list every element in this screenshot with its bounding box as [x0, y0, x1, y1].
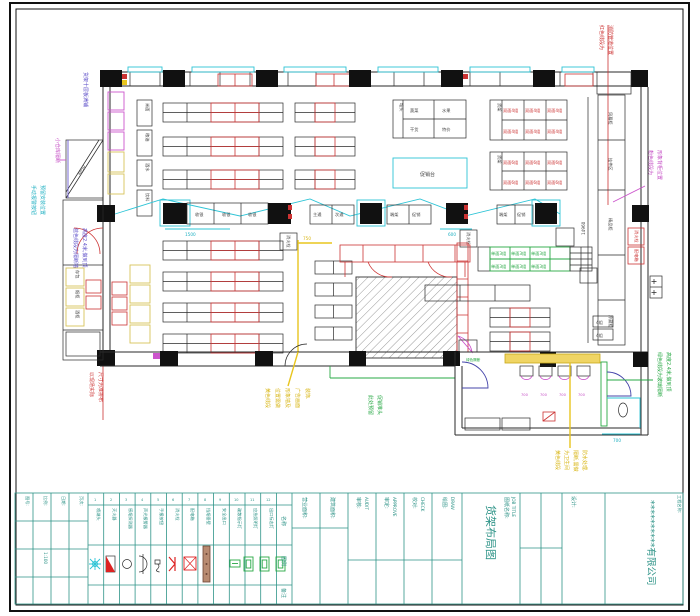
svg-text:声光报警器: 声光报警器 — [142, 508, 149, 530]
svg-text:4: 4 — [141, 498, 144, 502]
table-t3: 货架 双面6组 双面6组 双面6组 双面6组 双面6组 双面6组 — [490, 152, 567, 190]
svg-text:单面3组: 单面3组 — [511, 250, 526, 257]
svg-text:工程名称:: 工程名称: — [676, 495, 683, 513]
annotation-magenta: 粉色线段为 — [647, 150, 654, 175]
green-table: 单面3组 单面3组 单面3组 单面3组 单面3组 单面3组 — [490, 247, 570, 271]
svg-text:CHECK: CHECK — [420, 497, 425, 512]
corridor-box-label: 4组 — [596, 319, 603, 325]
svg-text:配电箱: 配电箱 — [189, 508, 196, 521]
marker — [122, 74, 127, 79]
checkout-band: 收银 收银 收银 主通 次通 端架 促销 端架 促销 1500 600 — [115, 199, 574, 250]
svg-text:收银: 收银 — [222, 211, 231, 218]
svg-text:9: 9 — [219, 498, 221, 502]
svg-text:防水处理.: 防水处理. — [581, 450, 588, 472]
svg-text:粮油: 粮油 — [144, 133, 151, 141]
svg-text:10: 10 — [234, 498, 238, 502]
dim-fixture: 700 — [559, 393, 567, 397]
svg-text:尺寸为准排布: 尺寸为准排布 — [97, 372, 104, 402]
svg-text:审定:: 审定: — [383, 497, 390, 509]
svg-text:收银: 收银 — [195, 211, 204, 218]
svg-text:水果: 水果 — [442, 107, 451, 114]
svg-text:双面6组: 双面6组 — [503, 179, 518, 186]
svg-text:装饰.: 装饰. — [304, 388, 311, 400]
dim-fixture: 700 — [521, 393, 529, 397]
mini-table: 图号: 比例: 日期: 页次: 1:100 — [15, 493, 88, 604]
svg-text:单面3组: 单面3组 — [491, 250, 506, 257]
company-cell: 工程名称: **********有限公司 — [645, 495, 683, 586]
svg-text:营业面积:: 营业面积: — [301, 497, 308, 519]
svg-text:货架: 货架 — [496, 103, 503, 111]
svg-text:消火栓: 消火栓 — [174, 508, 181, 521]
sprinkler-symbol — [89, 558, 101, 570]
left-label-boxes: 米面 粮油 酒水 饮料 — [137, 100, 152, 216]
corner-door — [458, 336, 472, 352]
svg-text:双面6组: 双面6组 — [525, 159, 540, 166]
svg-text:黄色线段: 黄色线段 — [554, 450, 561, 470]
ramp: 4850 — [66, 140, 103, 198]
svg-text:5: 5 — [157, 498, 159, 502]
marker — [153, 353, 160, 359]
svg-text:设计:: 设计: — [570, 496, 577, 508]
svg-text:手报按钮: 手报按钮 — [158, 508, 165, 525]
svg-text:饮料: 饮料 — [144, 193, 151, 202]
svg-text:双面6组: 双面6组 — [503, 159, 518, 166]
svg-text:蔬菜: 蔬菜 — [410, 107, 419, 114]
svg-text:双面4组: 双面4组 — [547, 128, 562, 135]
svg-text:双面4组: 双面4组 — [503, 128, 518, 135]
green-partition — [601, 362, 607, 426]
svg-text:感烟探测器: 感烟探测器 — [127, 508, 134, 530]
smoke-detector-symbol — [123, 560, 132, 569]
svg-text:收银: 收银 — [248, 211, 257, 218]
svg-text:为卫生间: 为卫生间 — [563, 450, 570, 470]
svg-text:页次:: 页次: — [78, 496, 85, 506]
svg-text:日期:: 日期: — [60, 496, 66, 506]
annotation-bottom-left-red: 以现场实际 尺寸为准排布 — [88, 366, 104, 420]
door-arc — [285, 344, 307, 366]
svg-text:双面6组: 双面6组 — [547, 159, 562, 166]
red-box-label: 配电箱 — [633, 249, 640, 262]
svg-text:高度2.4米,做到顶: 高度2.4米,做到顶 — [665, 352, 672, 392]
svg-text:米面: 米面 — [144, 103, 151, 111]
svg-text:单面3组: 单面3组 — [531, 250, 546, 257]
title-block: 图号: 比例: 日期: 页次: 1:100 1 2 3 4 5 6 7 8 9 … — [15, 493, 683, 604]
svg-text:绘图:: 绘图: — [441, 497, 448, 509]
svg-text:图号:: 图号: — [24, 496, 30, 506]
svg-text:堆头: 堆头 — [398, 103, 405, 111]
svg-text:次通: 次通 — [335, 211, 344, 218]
svg-text:审核:: 审核: — [355, 497, 362, 509]
svg-text:单面3组: 单面3组 — [511, 263, 526, 270]
lower-shelving: 750 — [112, 236, 352, 353]
drawing-name: 货架布局图 — [484, 505, 498, 560]
svg-text:DRAW: DRAW — [450, 497, 455, 510]
annotation-cyan: 预留安装位置 — [39, 185, 46, 215]
hatched-duct — [597, 72, 631, 94]
svg-text:绿色线段为玻璃隔断: 绿色线段为玻璃隔断 — [656, 352, 663, 397]
door-arc — [607, 372, 631, 396]
dim-toilet: 700 — [613, 438, 621, 443]
entry-annex: 存包 烟柜 酒柜 — [63, 200, 103, 360]
corridor-label: 挂件区 — [607, 158, 614, 171]
svg-text:存包: 存包 — [75, 270, 81, 279]
svg-text:隔断,需做: 隔断,需做 — [572, 450, 579, 472]
svg-text:1:100: 1:100 — [43, 552, 48, 564]
svg-text:促销台: 促销台 — [420, 171, 435, 178]
marker — [463, 74, 468, 79]
svg-text:双面4组: 双面4组 — [503, 107, 518, 114]
dim-ramp: 4850 — [76, 164, 86, 176]
svg-text:双面4组: 双面4组 — [525, 107, 540, 114]
svg-text:APPROVE: APPROVE — [392, 497, 397, 517]
annotation-left-magenta: 小仓库隔断 — [54, 138, 66, 163]
svg-text:双面4组: 双面4组 — [525, 128, 540, 135]
svg-text:7: 7 — [188, 498, 190, 502]
columns-top — [100, 70, 648, 87]
svg-text:2: 2 — [110, 498, 112, 502]
svg-text:双面6组: 双面6组 — [525, 179, 540, 186]
hydrant-symbol — [169, 557, 175, 571]
svg-text:酒柜: 酒柜 — [74, 310, 81, 318]
svg-text:促销: 促销 — [517, 211, 525, 218]
cad-sheet: 风幕柜 挂件区 精品柜 冷藏柜 消火栓 配电箱 4组 4组 14960 粉色线段… — [0, 0, 700, 616]
field-columns: 营业面积: 建筑面积: 审核: AUDIT 审定: APPROVE 校对: CH… — [292, 493, 462, 604]
svg-text:烟柜: 烟柜 — [74, 290, 81, 298]
exit-marker — [543, 412, 555, 421]
distribution-box-symbol — [184, 557, 196, 570]
dim-right-wall: 14960 — [581, 221, 586, 235]
dim-fixture: 700 — [540, 393, 548, 397]
annotation-red: 消防管道位置 — [607, 25, 614, 55]
svg-text:小仓库隔断: 小仓库隔断 — [54, 138, 61, 163]
safety-exit-symbol — [230, 560, 240, 567]
svg-text:主通: 主通 — [313, 211, 322, 218]
table-t1: 堆头 蔬菜 水果 干货 特价 — [393, 100, 466, 138]
svg-text:挡烟垂壁: 挡烟垂壁 — [205, 508, 212, 525]
dim-fixture: 700 — [578, 393, 586, 397]
svg-text:干货: 干货 — [410, 126, 418, 133]
floor-plan: 风幕柜 挂件区 精品柜 冷藏柜 消火栓 配电箱 4组 4组 14960 粉色线段… — [30, 25, 672, 472]
svg-text:图纸名称:: 图纸名称: — [503, 497, 510, 519]
dim: 1500 — [185, 232, 196, 237]
svg-text:校对:: 校对: — [411, 497, 418, 509]
svg-text:酒水: 酒水 — [144, 163, 151, 172]
svg-text:双面4组: 双面4组 — [547, 107, 562, 114]
table-t2: 货架 双面4组 双面4组 双面4组 双面4组 双面4组 双面4组 — [490, 100, 567, 140]
svg-text:备注: 备注 — [280, 588, 287, 598]
annotation-blue: 货架十层板满铺 — [82, 72, 89, 107]
svg-text:以现场实际: 以现场实际 — [88, 372, 95, 397]
svg-text:11: 11 — [250, 498, 254, 502]
svg-text:出口标志灯: 出口标志灯 — [268, 508, 275, 530]
annotation-cyan: 手动报警按钮 — [30, 185, 37, 215]
svg-text:建筑面积:: 建筑面积: — [329, 497, 336, 519]
legend-symbols — [89, 546, 285, 582]
corridor-box-label: 4组 — [596, 332, 603, 338]
svg-text:单面3组: 单面3组 — [531, 263, 546, 270]
svg-text:消火栓: 消火栓 — [285, 235, 292, 248]
svg-text:喷淋头: 喷淋头 — [95, 508, 102, 521]
svg-text:双面6组: 双面6组 — [547, 179, 562, 186]
dim-yellow: 750 — [303, 236, 311, 241]
svg-text:黄色线段: 黄色线段 — [264, 388, 271, 408]
smoke-barrier-symbol — [203, 546, 210, 582]
svg-text:此处预留: 此处预留 — [367, 395, 374, 415]
svg-text:12: 12 — [266, 498, 270, 502]
annotation-red: 红色线段为 — [598, 25, 605, 50]
svg-text:6: 6 — [172, 498, 174, 502]
corridor-label: 风幕柜 — [607, 112, 614, 125]
annotation-purple: 高度2.4米,做到顶 — [81, 228, 88, 268]
svg-text:广告画面: 广告画面 — [294, 388, 301, 408]
svg-text:单面3组: 单面3组 — [491, 263, 506, 270]
toilet-fixture — [619, 403, 628, 417]
svg-text:AUDIT: AUDIT — [364, 497, 369, 510]
annotation-mid-green: 此处预留 促销堆头 — [367, 395, 383, 415]
company-name: **********有限公司 — [645, 500, 657, 586]
annotation-green-small: 绿色隔断 — [466, 357, 481, 362]
svg-text:应急照明灯: 应急照明灯 — [252, 508, 259, 530]
dim: 600 — [448, 232, 456, 237]
red-box-label: 消火栓 — [633, 230, 640, 243]
svg-text:3: 3 — [125, 498, 127, 502]
stair-core — [340, 243, 472, 358]
marker — [122, 80, 127, 85]
top-wall — [100, 67, 648, 94]
svg-text:位置需做: 位置需做 — [274, 388, 281, 408]
svg-text:端架: 端架 — [390, 211, 398, 218]
svg-text:图例: 图例 — [280, 556, 287, 566]
annotation-magenta: 形象背柜位置 — [656, 150, 663, 180]
svg-text:疏散指示灯: 疏散指示灯 — [236, 508, 243, 530]
svg-text:形象墙及: 形象墙及 — [284, 388, 291, 408]
svg-text:灭火器: 灭火器 — [111, 508, 117, 521]
svg-text:促销堆头: 促销堆头 — [376, 395, 383, 415]
legend-table: 1 2 3 4 5 6 7 8 9 10 11 12 喷淋头 灭火器 感烟探测器… — [88, 493, 292, 604]
upper-shelving — [163, 103, 355, 189]
call-button-symbol — [155, 560, 160, 572]
extinguisher-symbol — [106, 556, 115, 572]
svg-text:端架: 端架 — [499, 211, 507, 218]
svg-text:8: 8 — [204, 498, 206, 502]
svg-text:特价: 特价 — [442, 126, 451, 132]
svg-text:比例:: 比例: — [42, 496, 49, 506]
svg-text:JOB TITLE: JOB TITLE — [511, 496, 516, 517]
svg-text:促销: 促销 — [412, 211, 420, 218]
door-arc — [462, 362, 488, 388]
svg-text:1: 1 — [94, 498, 96, 502]
alarm-bell-symbol — [139, 554, 147, 574]
svg-text:名称: 名称 — [280, 516, 287, 526]
svg-text:货架: 货架 — [496, 155, 503, 163]
promo-island: 促销台 — [393, 158, 467, 188]
annotation-purple: 蓝色线段为隔断墙 — [72, 228, 79, 268]
job-title-cell: 图纸名称: JOB TITLE 货架布局图 设计: — [484, 493, 605, 604]
left-wall: 米面 粮油 酒水 饮料 4850 — [63, 87, 160, 366]
yellow-partition — [505, 354, 600, 363]
corridor-label: 精品柜 — [607, 218, 614, 231]
svg-text:安全出口: 安全出口 — [221, 508, 228, 525]
